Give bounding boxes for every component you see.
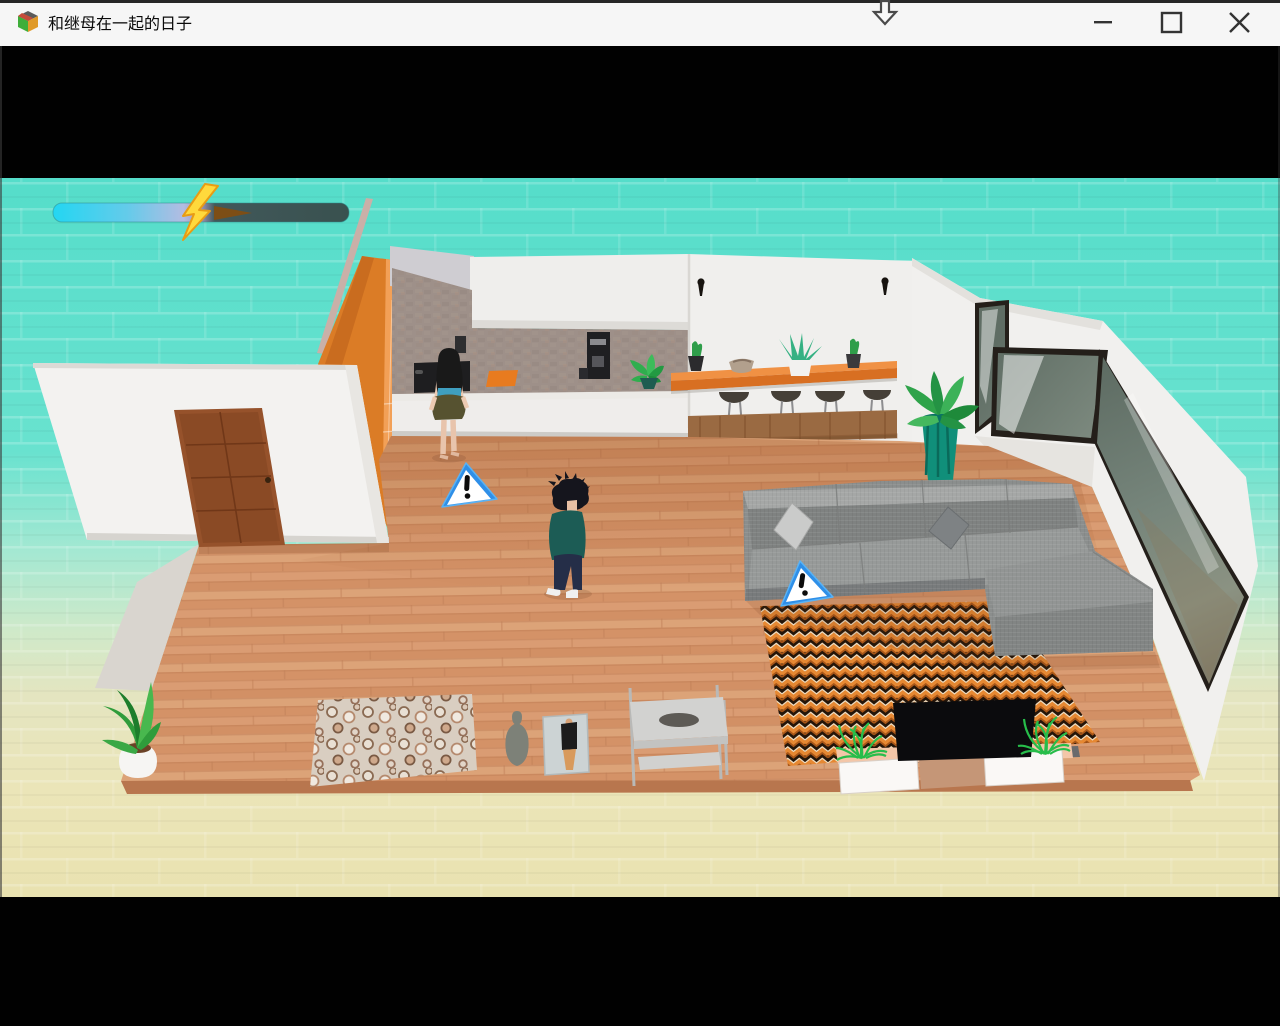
svg-text:和继母在一起的日子: 和继母在一起的日子 xyxy=(48,15,192,33)
